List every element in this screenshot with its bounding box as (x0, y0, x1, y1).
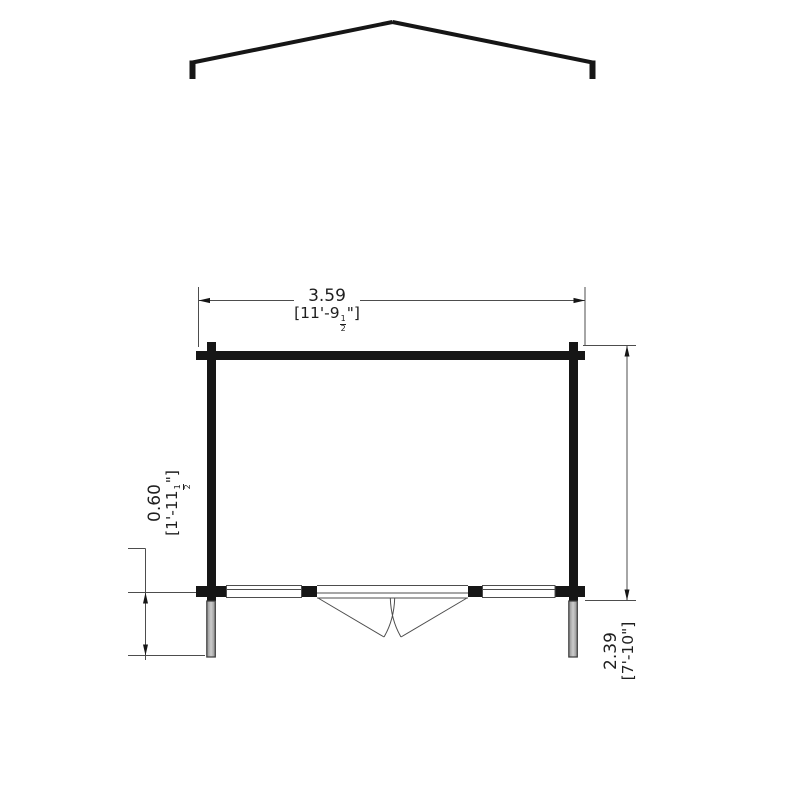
dimension-overhang (128, 549, 205, 661)
wall-back (196, 351, 585, 360)
technical-drawing-canvas: 3.59 [11'-912"] 0.60 [1'-1112"] 2.39 [7'… (0, 0, 800, 800)
width-dimension-label: 3.59 [11'-912"] (277, 287, 377, 334)
drawing-linework (0, 0, 800, 800)
double-door (317, 586, 468, 638)
window-right (483, 586, 556, 598)
dim-arrow-down (143, 645, 148, 656)
dimension-depth (583, 346, 636, 601)
dimension-width (199, 287, 586, 347)
wall-front-door-jamb-left (301, 586, 317, 597)
wall-right (569, 342, 578, 601)
wall-front-left (196, 586, 226, 597)
dim-arrow-up (143, 593, 148, 604)
depth-imperial-text: [7'-10"] (620, 596, 637, 706)
half-fraction: 12 (174, 484, 193, 490)
wall-left (207, 342, 216, 601)
half-fraction: 12 (340, 315, 346, 334)
depth-metric-text: 2.39 (602, 596, 620, 706)
depth-dimension-label: 2.39 [7'-10"] (602, 596, 642, 706)
dim-arrow-right (574, 298, 586, 303)
overhang-imperial-text: [1'-1112"] (164, 448, 193, 558)
door-leaf-left (318, 598, 384, 637)
door-leaf-right (401, 598, 467, 637)
overhang-metric-text: 0.60 (146, 448, 164, 558)
post-left (207, 601, 216, 657)
overhang-dimension-label: 0.60 [1'-1112"] (146, 448, 186, 558)
wall-front-door-jamb-right (468, 586, 483, 597)
post-right (569, 601, 578, 657)
roof-outline (190, 22, 596, 79)
dim-arrow-left (199, 298, 211, 303)
floor-plan-walls (196, 342, 585, 601)
window-left (227, 586, 302, 598)
width-metric-text: 3.59 (277, 287, 377, 305)
roof-eave-right (590, 61, 596, 80)
canopy-posts (207, 601, 578, 657)
width-imperial-text: [11'-912"] (277, 305, 377, 334)
roof-eave-left (190, 61, 196, 80)
dim-arrow-up (625, 346, 630, 357)
wall-front-right (555, 586, 585, 597)
